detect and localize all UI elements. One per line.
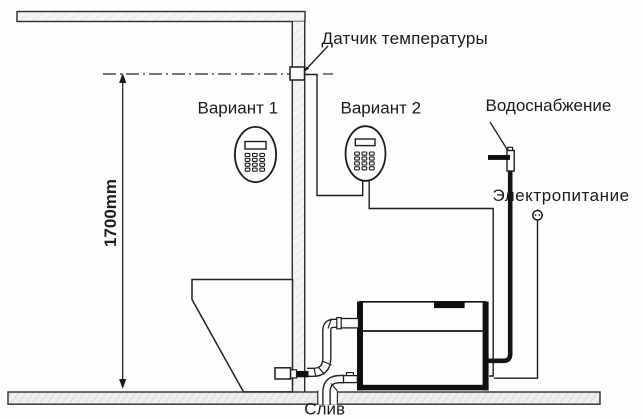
- svg-text:Слив: Слив: [304, 400, 345, 419]
- svg-text:Вариант 2: Вариант 2: [341, 99, 422, 118]
- svg-text:Вариант 1: Вариант 1: [198, 99, 279, 118]
- svg-text:Датчик температуры: Датчик температуры: [322, 29, 488, 48]
- svg-text:Водоснабжение: Водоснабжение: [486, 96, 612, 115]
- svg-text:Электропитание: Электропитание: [493, 186, 630, 205]
- svg-text:1700mm: 1700mm: [101, 179, 120, 247]
